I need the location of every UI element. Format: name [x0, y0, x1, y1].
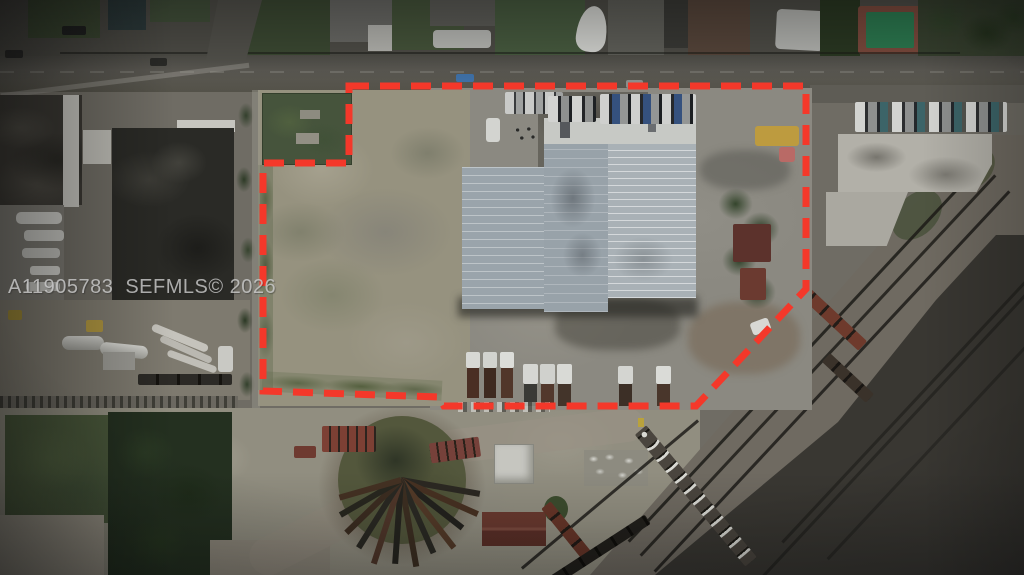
- mls-watermark: A11905783SEFMLS© 2026: [8, 276, 276, 299]
- mls-number: A11905783: [8, 276, 113, 298]
- mls-source: SEFMLS© 2026: [125, 276, 276, 298]
- aerial-listing-photo: A11905783SEFMLS© 2026: [0, 0, 1024, 575]
- property-boundary-outline: [263, 86, 806, 406]
